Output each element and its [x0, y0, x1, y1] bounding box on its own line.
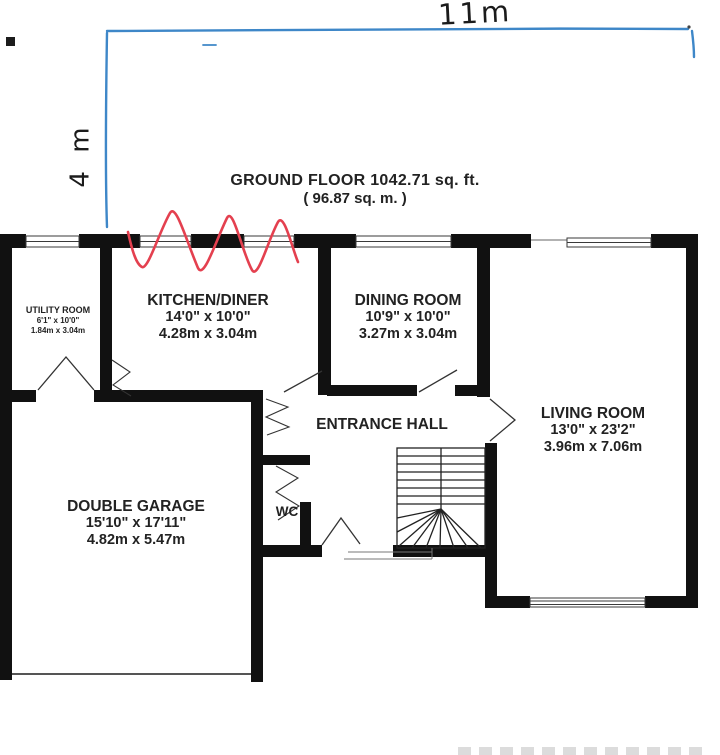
room-dims-imperial: 6'1" x 10'0": [12, 316, 104, 326]
room-dims-metric: 4.82m x 5.47m: [36, 532, 236, 549]
front-door-swing: [322, 518, 360, 545]
room-name: DOUBLE GARAGE: [36, 498, 236, 515]
floor-title: GROUND FLOOR 1042.71 sq. ft. ( 96.87 sq.…: [160, 172, 550, 207]
room-label-dining: DINING ROOM 10'9" x 10'0" 3.27m x 3.04m: [320, 292, 496, 343]
room-dims-imperial: 13'0" x 23'2": [493, 422, 693, 439]
cutoff-watermark: [458, 747, 708, 755]
blue-right-tick: [692, 31, 694, 57]
blue-height-line: [106, 33, 107, 227]
room-dims-metric: 4.28m x 3.04m: [108, 326, 308, 343]
blue-width-line: [107, 29, 688, 31]
room-name: LIVING ROOM: [493, 405, 693, 422]
hall-opening-zigzag: [266, 399, 289, 435]
room-dims-imperial: 15'10" x 17'11": [36, 515, 236, 532]
room-label-garage: DOUBLE GARAGE 15'10" x 17'11" 4.82m x 5.…: [36, 498, 236, 549]
room-label-utility: UTILITY ROOM 6'1" x 10'0" 1.84m x 3.04m: [12, 305, 104, 336]
stairs: [397, 448, 485, 548]
pen-dot: [687, 25, 690, 28]
floor-title-line2: ( 96.87 sq. m. ): [160, 190, 550, 207]
room-dims-metric: 1.84m x 3.04m: [12, 326, 104, 336]
utility-door-swing: [38, 357, 94, 390]
handwritten-width-label: 11m: [437, 0, 513, 32]
room-label-wc: WC: [266, 503, 308, 520]
room-dims-imperial: 10'9" x 10'0": [320, 309, 496, 326]
floorplan-screenshot: GROUND FLOOR 1042.71 sq. ft. ( 96.87 sq.…: [0, 0, 720, 755]
room-label-living: LIVING ROOM 13'0" x 23'2" 3.96m x 7.06m: [493, 405, 693, 456]
room-dims-metric: 3.27m x 3.04m: [320, 326, 496, 343]
room-label-hall: ENTRANCE HALL: [292, 416, 472, 433]
floorplan-drawing: [0, 0, 720, 755]
room-name: UTILITY ROOM: [12, 305, 104, 316]
room-name: KITCHEN/DINER: [108, 292, 308, 309]
kitchen-hall-door: [284, 371, 322, 392]
handwritten-height-label: 4 m: [66, 122, 96, 187]
room-name: WC: [266, 503, 308, 520]
floor-title-line1: GROUND FLOOR 1042.71 sq. ft.: [160, 172, 550, 190]
room-dims-metric: 3.96m x 7.06m: [493, 439, 693, 456]
room-name: ENTRANCE HALL: [292, 416, 472, 433]
dining-hall-door: [419, 370, 457, 392]
room-dims-imperial: 14'0" x 10'0": [108, 309, 308, 326]
room-name: DINING ROOM: [320, 292, 496, 309]
room-label-kitchen: KITCHEN/DINER 14'0" x 10'0" 4.28m x 3.04…: [108, 292, 308, 343]
scan-artifact-dot: [6, 37, 15, 46]
